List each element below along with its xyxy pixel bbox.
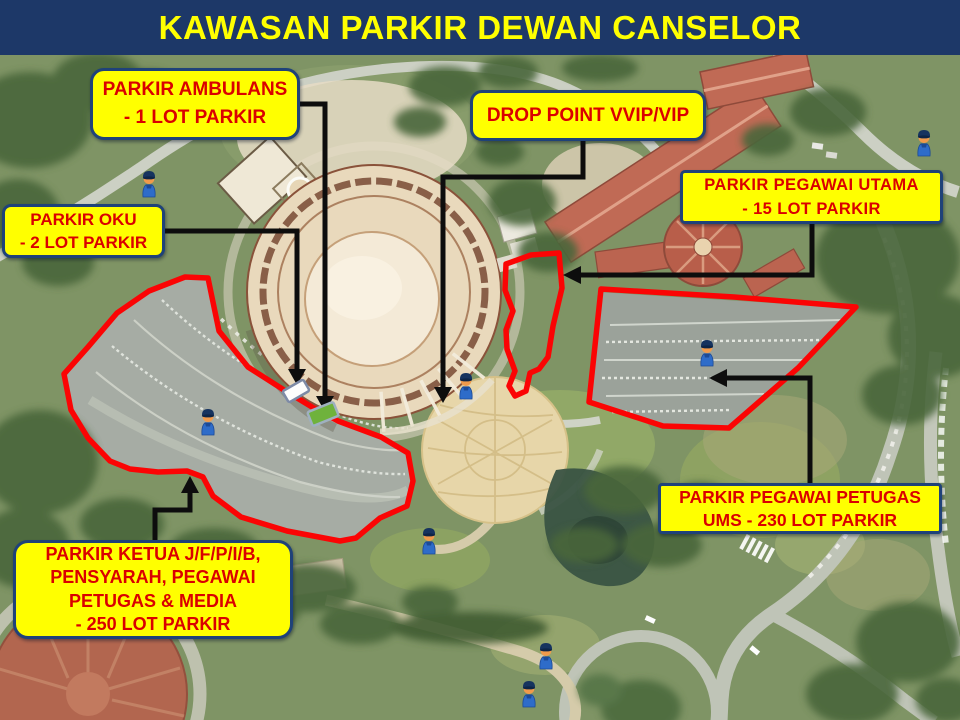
- page-title: KAWASAN PARKIR DEWAN CANSELOR: [159, 9, 802, 47]
- label-line: PARKIR PEGAWAI PETUGAS: [661, 486, 939, 509]
- label-line: - 15 LOT PARKIR: [683, 197, 940, 221]
- slide: KAWASAN PARKIR DEWAN CANSELOR PARKIR AMB…: [0, 0, 960, 720]
- label-drop-point-vvip: DROP POINT VVIP/VIP: [470, 90, 706, 141]
- label-parkir-pegawai-petugas-ums: PARKIR PEGAWAI PETUGAS UMS - 230 LOT PAR…: [658, 483, 942, 534]
- label-line: PARKIR KETUA J/F/P/I/B,: [16, 543, 290, 567]
- label-line: PARKIR PEGAWAI UTAMA: [683, 173, 940, 197]
- label-line: PETUGAS & MEDIA: [16, 590, 290, 614]
- label-line: UMS - 230 LOT PARKIR: [661, 509, 939, 532]
- label-line: PENSYARAH, PEGAWAI: [16, 566, 290, 590]
- label-line: PARKIR AMBULANS: [93, 76, 297, 104]
- label-parkir-oku: PARKIR OKU - 2 LOT PARKIR: [2, 204, 165, 258]
- label-line: PARKIR OKU: [5, 208, 162, 231]
- label-parkir-ambulans: PARKIR AMBULANS - 1 LOT PARKIR: [90, 68, 300, 140]
- label-parkir-pegawai-utama: PARKIR PEGAWAI UTAMA - 15 LOT PARKIR: [680, 170, 943, 224]
- label-parkir-ketua: PARKIR KETUA J/F/P/I/B, PENSYARAH, PEGAW…: [13, 540, 293, 639]
- label-line: DROP POINT VVIP/VIP: [473, 105, 703, 127]
- label-line: - 1 LOT PARKIR: [93, 104, 297, 132]
- label-line: - 250 LOT PARKIR: [16, 613, 290, 637]
- title-bar: KAWASAN PARKIR DEWAN CANSELOR: [0, 0, 960, 55]
- label-line: - 2 LOT PARKIR: [5, 231, 162, 254]
